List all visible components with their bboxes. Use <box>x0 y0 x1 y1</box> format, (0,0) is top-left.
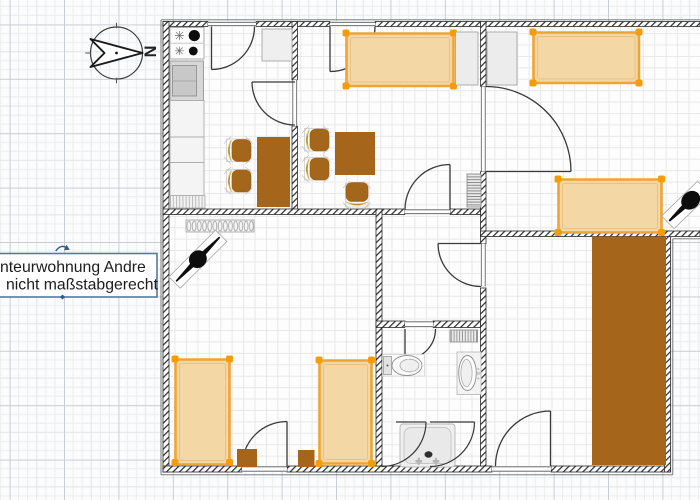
svg-text:nteurwohnung Andre: nteurwohnung Andre <box>0 259 146 276</box>
svg-text:N: N <box>141 46 159 58</box>
svg-text:nicht maßstabgerecht: nicht maßstabgerecht <box>6 277 159 294</box>
